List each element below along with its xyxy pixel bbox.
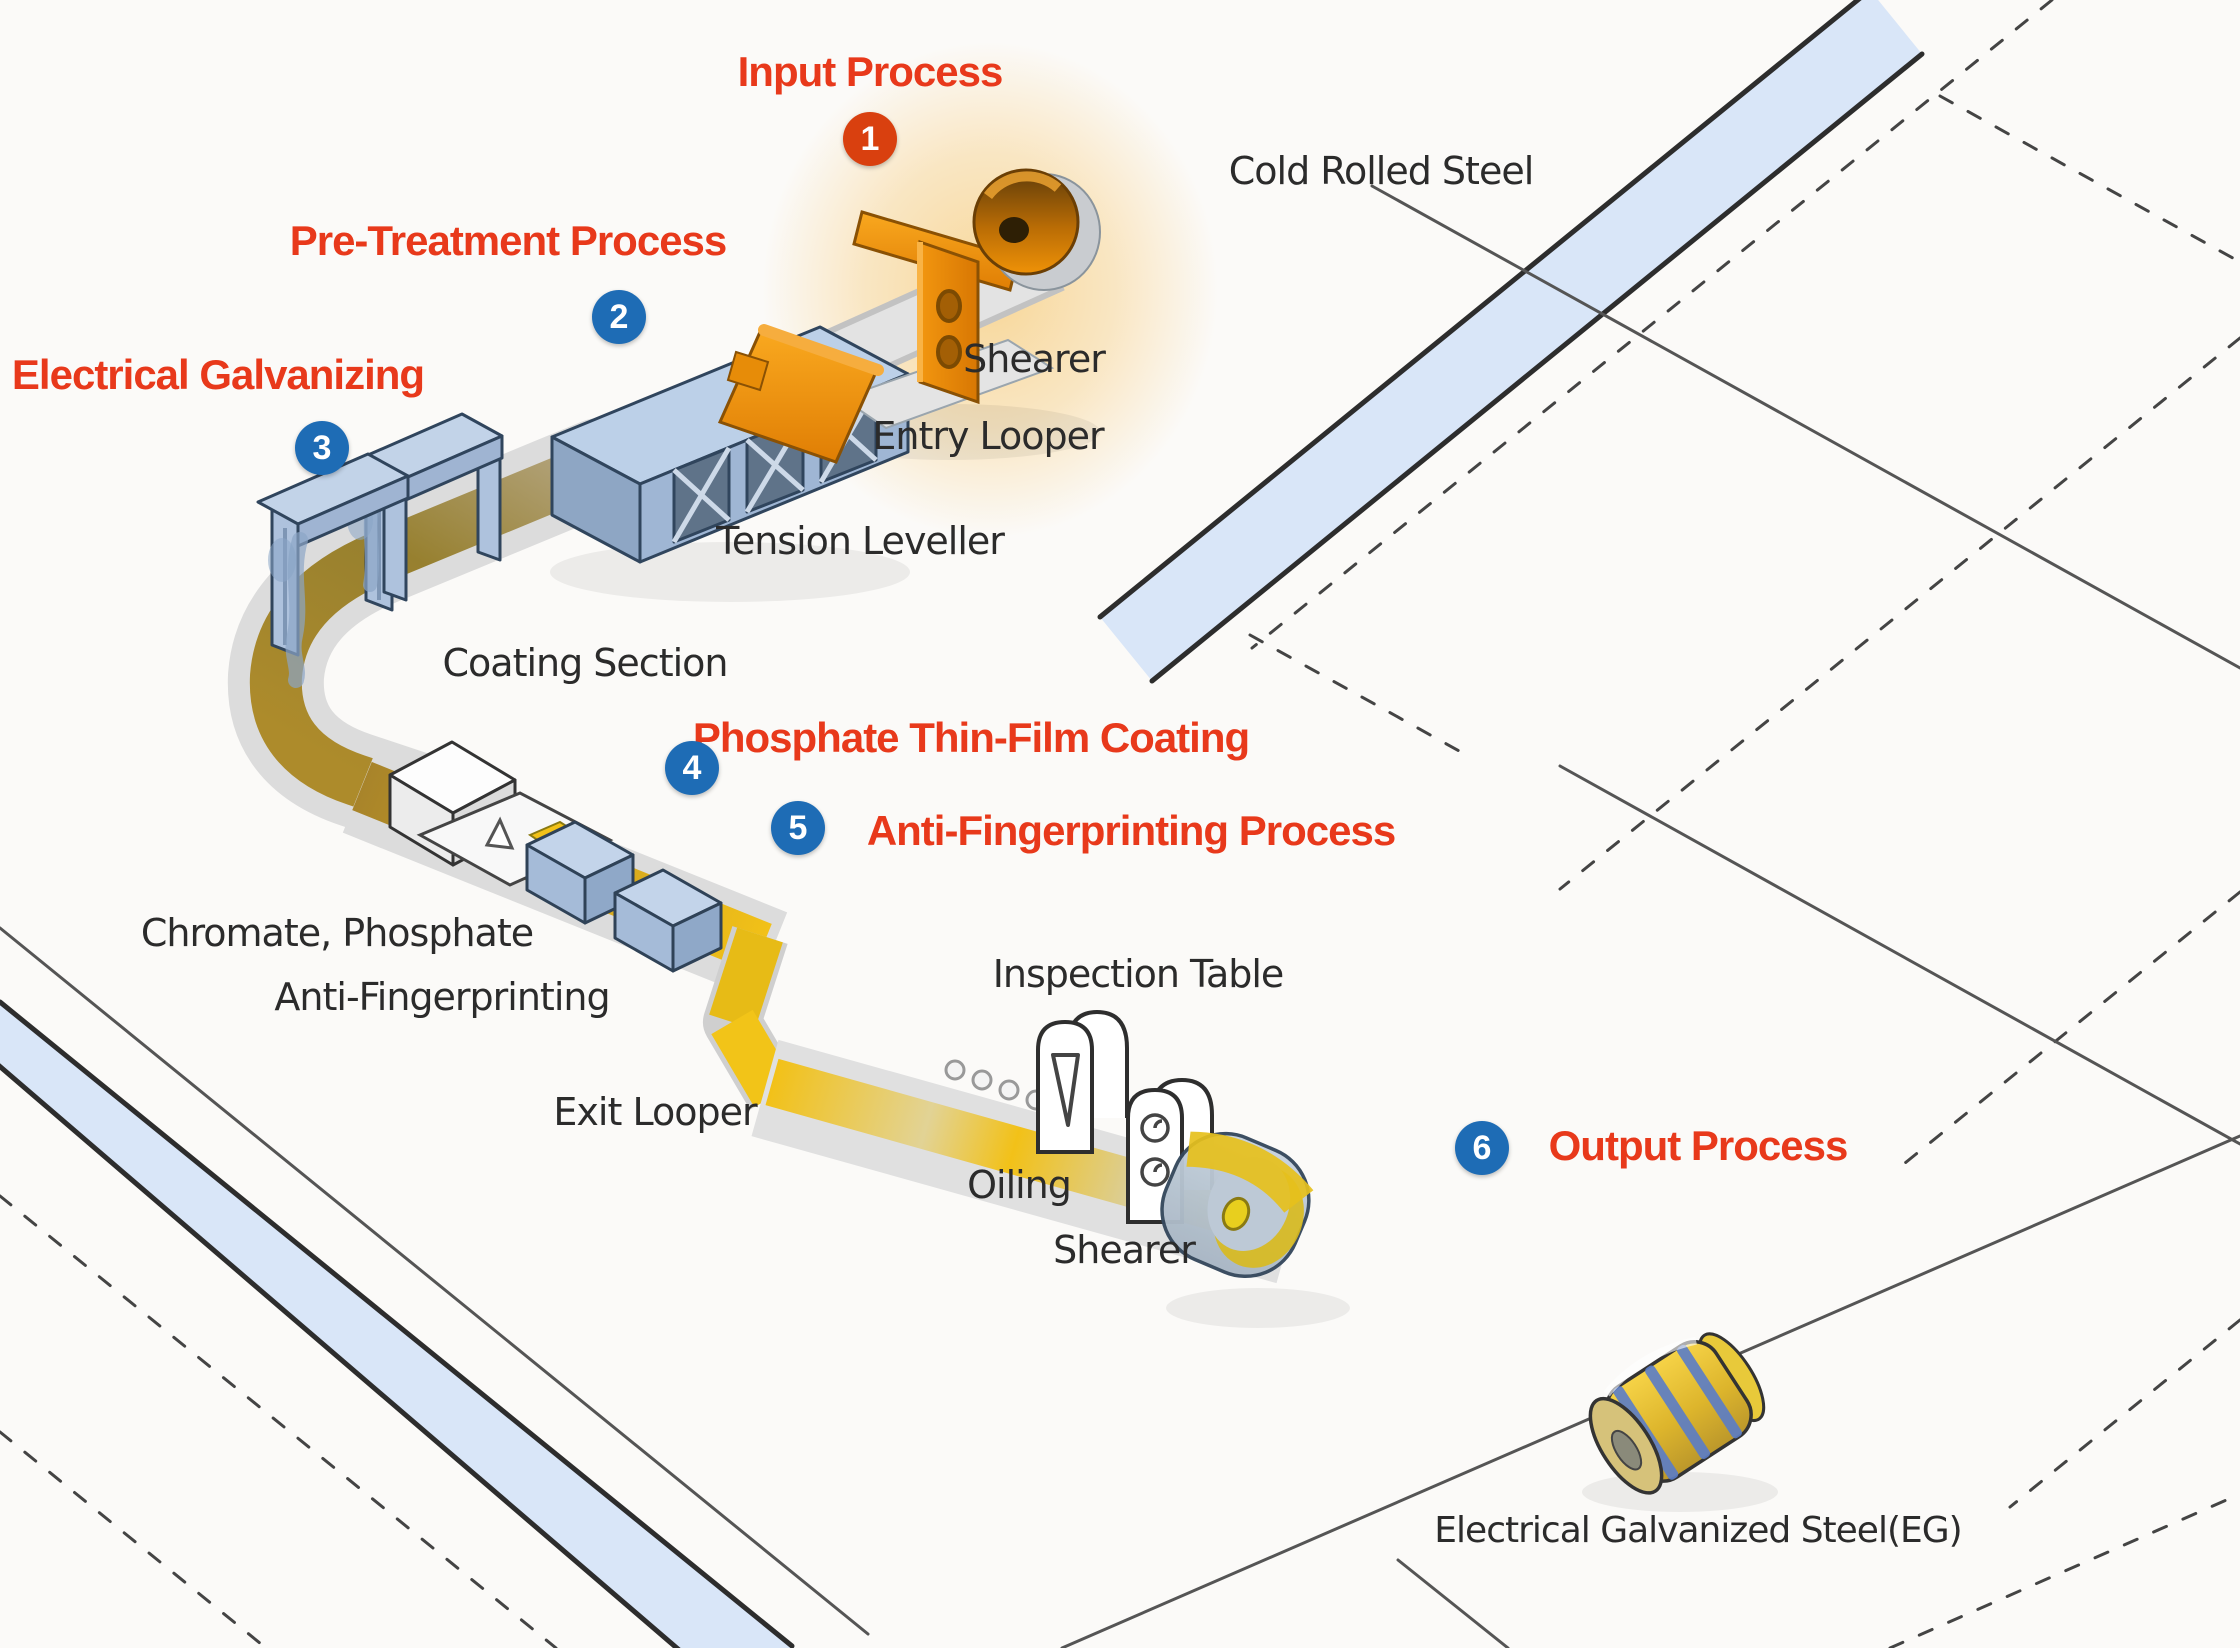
step-label-input-process: Input Process — [738, 51, 1003, 93]
label-shearer-entry: Shearer — [963, 339, 1105, 381]
label-cold-rolled-steel: Cold Rolled Steel — [1229, 151, 1534, 193]
step-label-anti-fingerprinting: Anti-Fingerprinting Process — [867, 810, 1395, 852]
label-tension-leveller: Tension Leveller — [716, 521, 1004, 563]
labels-layer: Input Process Pre-Treatment Process Elec… — [0, 0, 2240, 1648]
label-shearer-exit: Shearer — [1053, 1230, 1195, 1272]
step-label-pre-treatment: Pre-Treatment Process — [290, 220, 727, 262]
label-exit-looper: Exit Looper — [553, 1092, 756, 1134]
label-chromate-phosphate: Chromate, Phosphate — [141, 913, 533, 955]
egl-process-diagram: Input Process Pre-Treatment Process Elec… — [0, 0, 2240, 1648]
step-badge-6: 6 — [1455, 1121, 1509, 1175]
label-entry-looper: Entry Looper — [872, 416, 1103, 458]
step-badge-5: 5 — [771, 801, 825, 855]
label-coating-section: Coating Section — [443, 643, 728, 685]
label-inspection-table: Inspection Table — [993, 954, 1284, 996]
step-label-output-process: Output Process — [1549, 1125, 1848, 1167]
step-badge-2: 2 — [592, 290, 646, 344]
label-eg-output: Electrical Galvanized Steel(EG) — [1434, 1511, 1961, 1551]
step-badge-4: 4 — [665, 741, 719, 795]
label-oiling: Oiling — [967, 1165, 1071, 1207]
label-anti-fingerprinting: Anti-Fingerprinting — [274, 977, 609, 1019]
step-label-electrical-galvanizing: Electrical Galvanizing — [12, 354, 424, 396]
step-badge-1: 1 — [843, 112, 897, 166]
step-label-phosphate-coating: Phosphate Thin-Film Coating — [693, 717, 1249, 759]
step-badge-3: 3 — [295, 421, 349, 475]
